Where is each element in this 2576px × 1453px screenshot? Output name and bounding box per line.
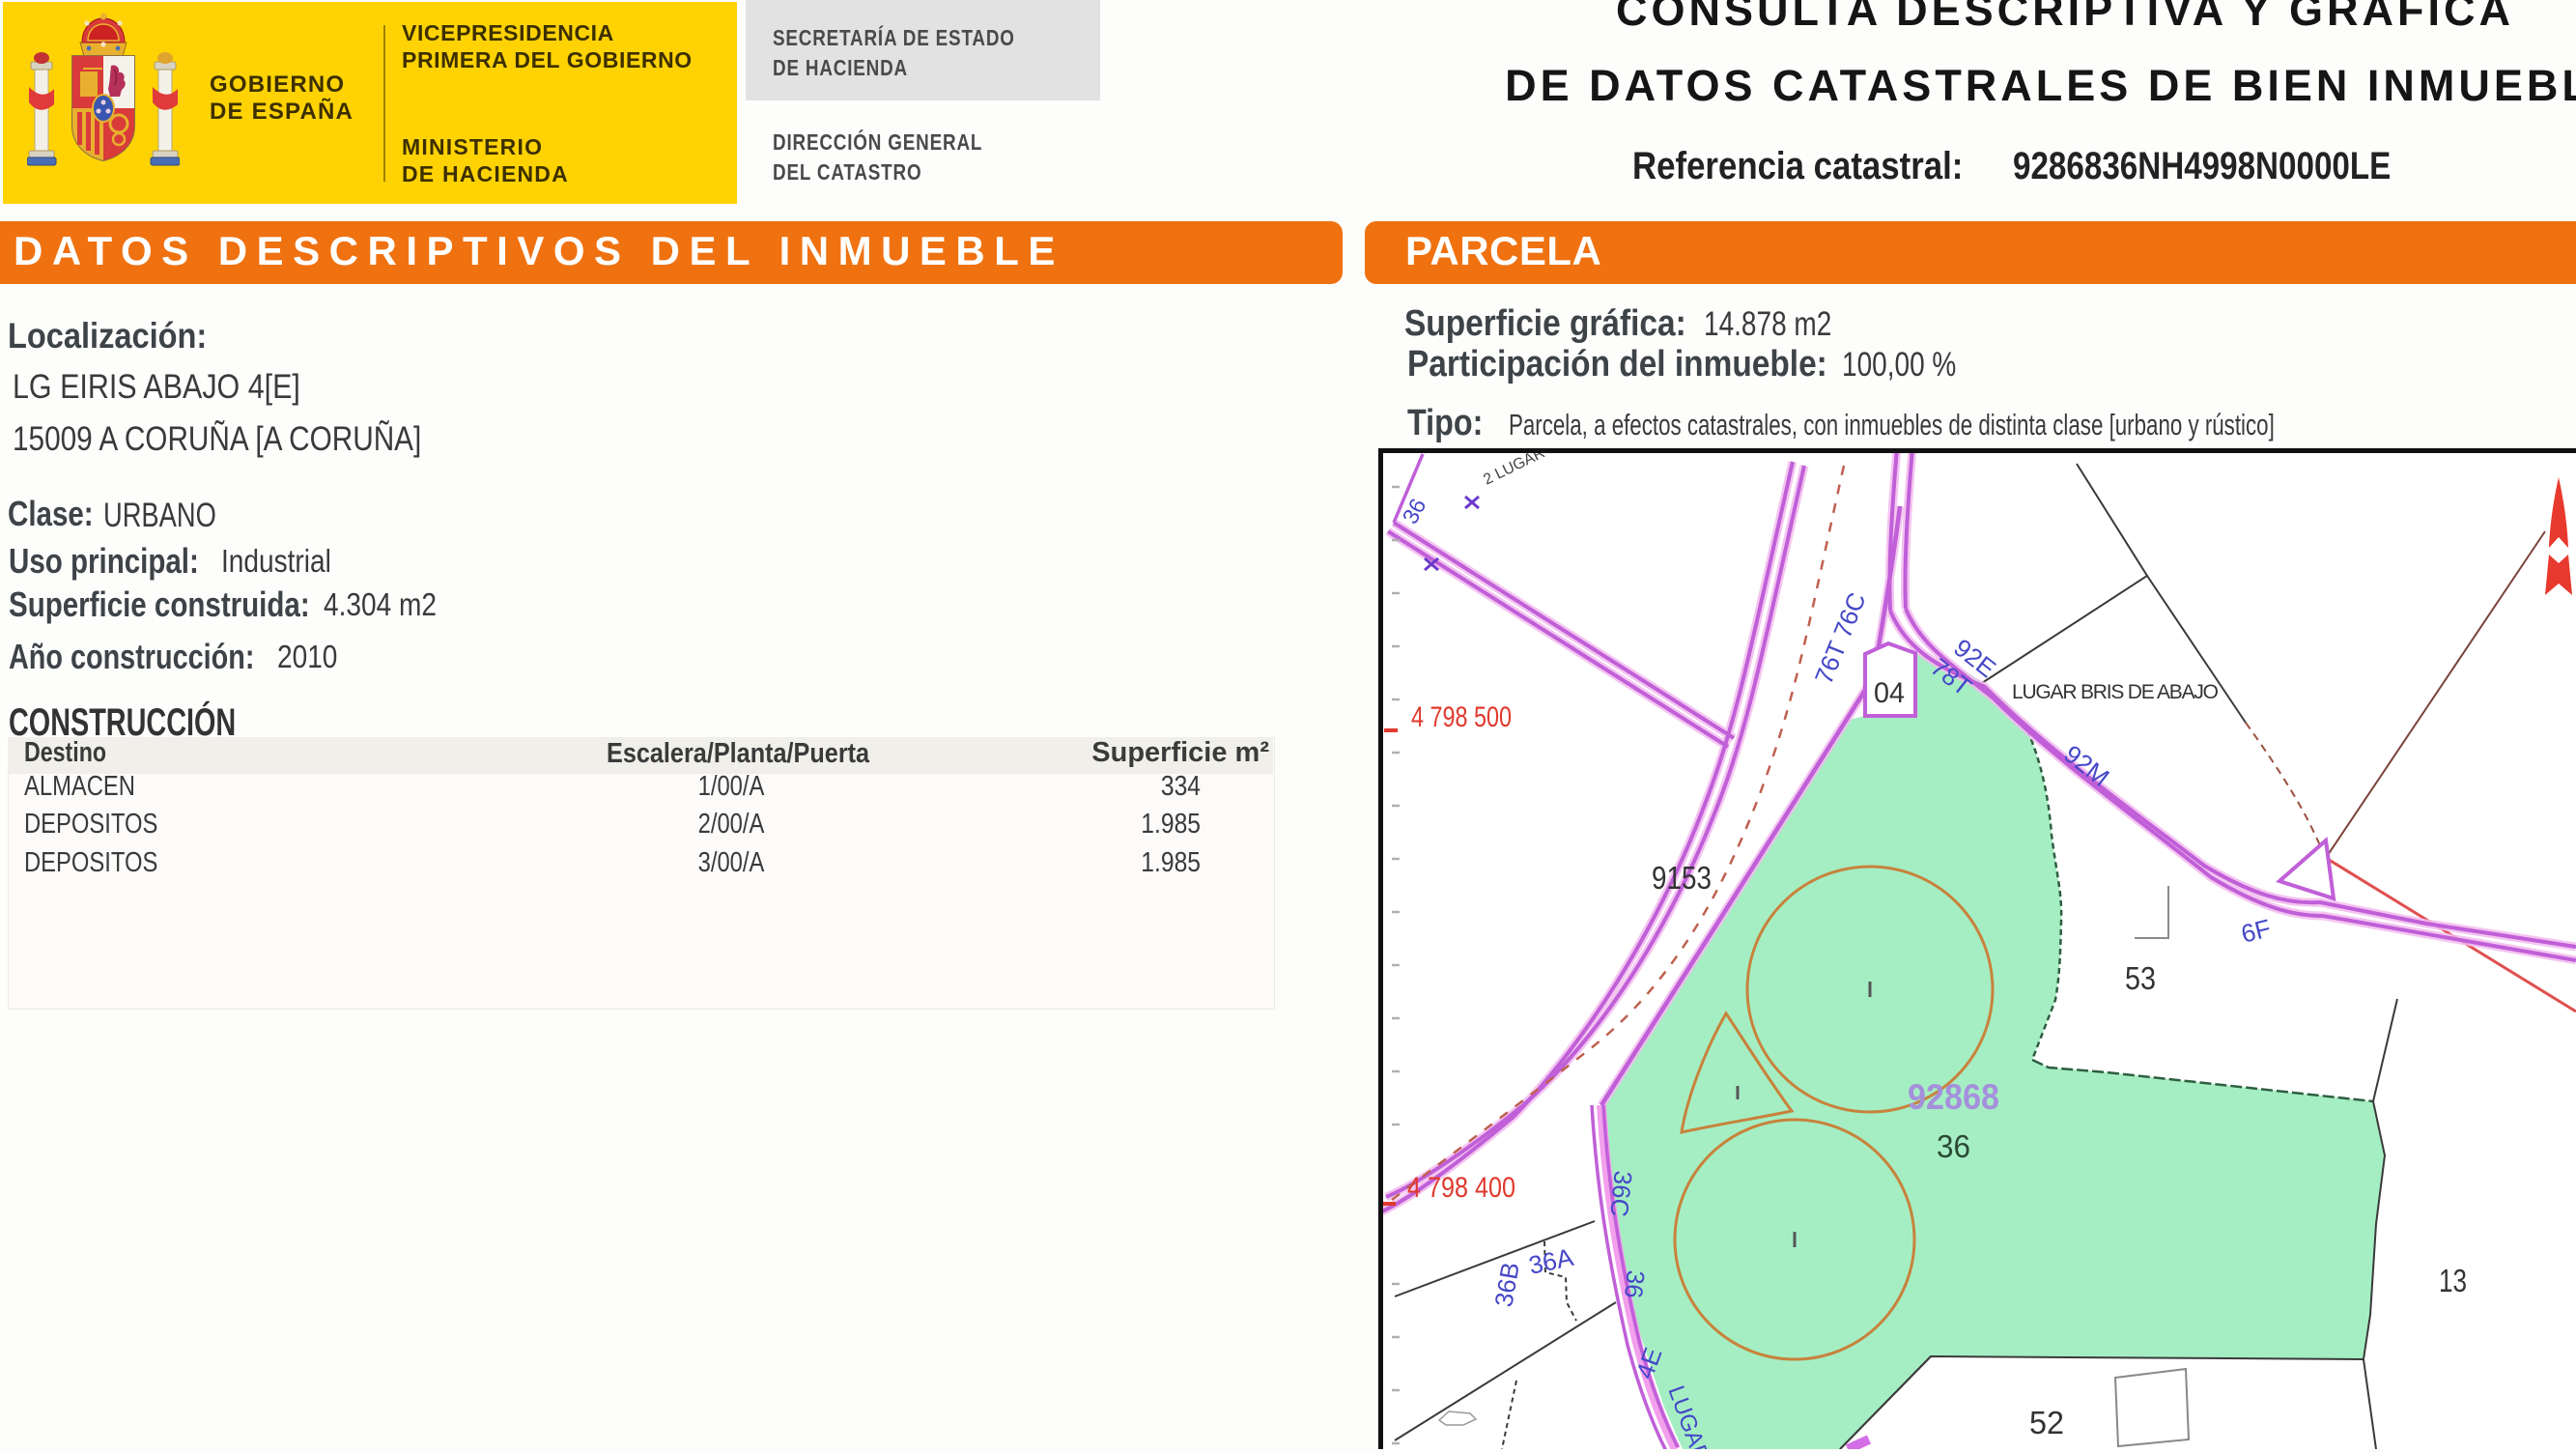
- svg-text:53: 53: [2125, 960, 2156, 996]
- svg-text:LUGAR BRIS DE ABAJO: LUGAR BRIS DE ABAJO: [2012, 681, 2219, 703]
- svg-text:04: 04: [1874, 677, 1905, 709]
- svg-text:13: 13: [2439, 1263, 2467, 1298]
- svg-text:9153: 9153: [1652, 860, 1712, 896]
- svg-text:92868: 92868: [1908, 1077, 1999, 1117]
- svg-text:4 798 500: 4 798 500: [1411, 701, 1512, 733]
- svg-text:36: 36: [1937, 1128, 1970, 1164]
- svg-text:52: 52: [2029, 1405, 2064, 1440]
- svg-text:36: 36: [1619, 1268, 1651, 1299]
- svg-text:4 798 400: 4 798 400: [1407, 1172, 1515, 1204]
- svg-text:36C: 36C: [1604, 1169, 1638, 1218]
